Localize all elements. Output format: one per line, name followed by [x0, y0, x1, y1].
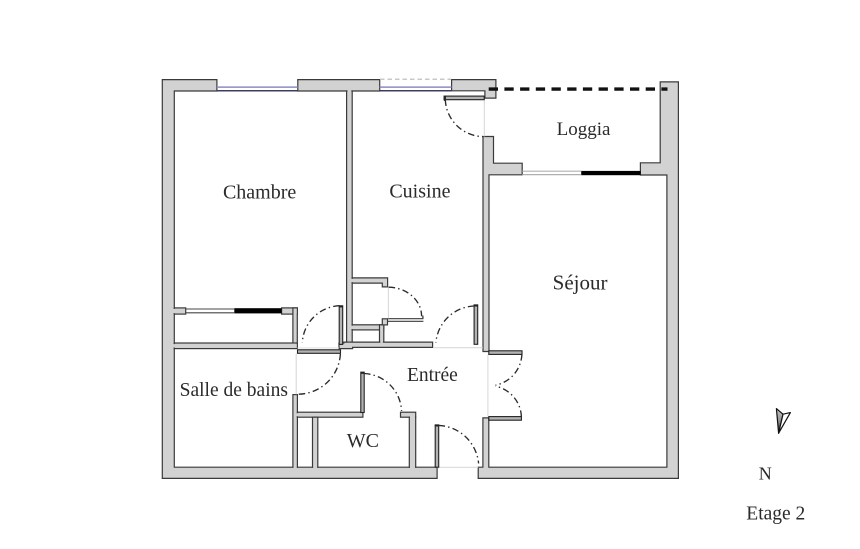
- svg-text:Séjour: Séjour: [553, 271, 608, 295]
- svg-text:N: N: [759, 464, 772, 484]
- svg-text:Entrée: Entrée: [407, 365, 458, 386]
- svg-text:Cuisine: Cuisine: [389, 181, 450, 203]
- svg-text:Chambre: Chambre: [223, 182, 296, 204]
- svg-text:Salle de bains: Salle de bains: [180, 380, 288, 401]
- svg-text:Etage 2: Etage 2: [746, 504, 805, 525]
- svg-text:Loggia: Loggia: [557, 119, 611, 140]
- svg-text:WC: WC: [347, 430, 379, 452]
